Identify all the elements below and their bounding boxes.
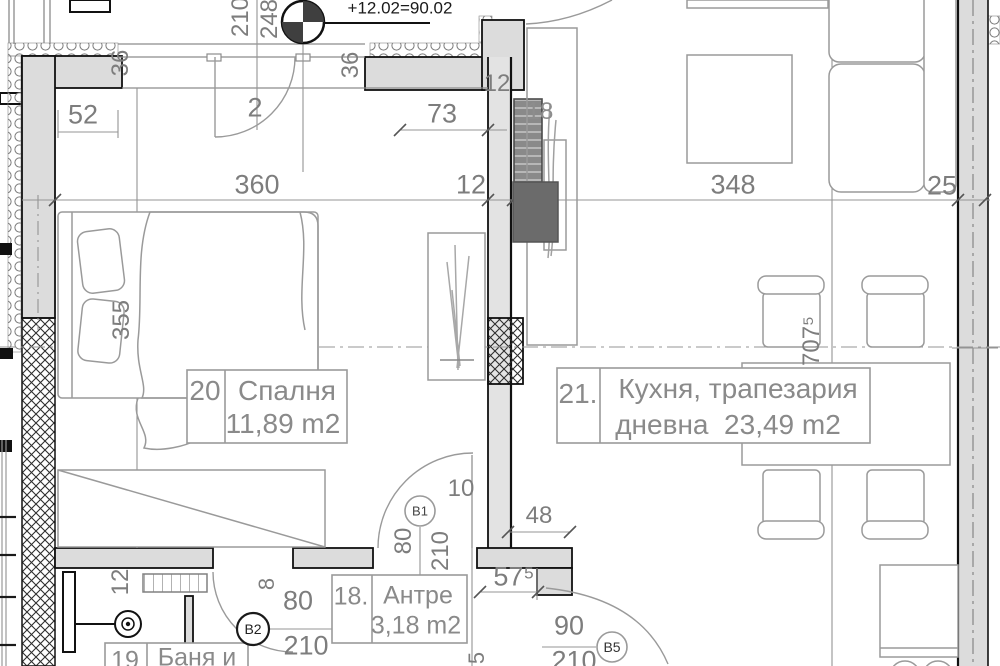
b1-circle [405, 496, 435, 526]
elevation-marker [282, 1, 430, 43]
plan-geometry [0, 0, 1000, 666]
hall-radiator [143, 574, 207, 592]
b2-circle [237, 613, 269, 645]
dresser-plant [428, 233, 485, 380]
coffee-table [687, 55, 792, 163]
wardrobe [58, 470, 325, 547]
sofa [829, 0, 956, 192]
kitchen-counter [880, 565, 958, 666]
door-2-swing [215, 57, 295, 137]
chair [758, 276, 824, 347]
plumbing-symbol [75, 611, 141, 637]
terrace-leaf [687, 0, 828, 8]
room20-box [187, 370, 347, 443]
room21-box [557, 368, 870, 443]
balcony-edge [0, 440, 16, 666]
b5-circle [597, 632, 627, 662]
room18-box [332, 575, 467, 643]
chair [862, 470, 928, 539]
room19-box [105, 643, 248, 666]
chair [758, 470, 824, 539]
chair [862, 276, 928, 347]
door-terrace-swing [526, 0, 612, 24]
floor-plan: +12.02=90.022102482523636731218360123482… [0, 0, 1000, 666]
